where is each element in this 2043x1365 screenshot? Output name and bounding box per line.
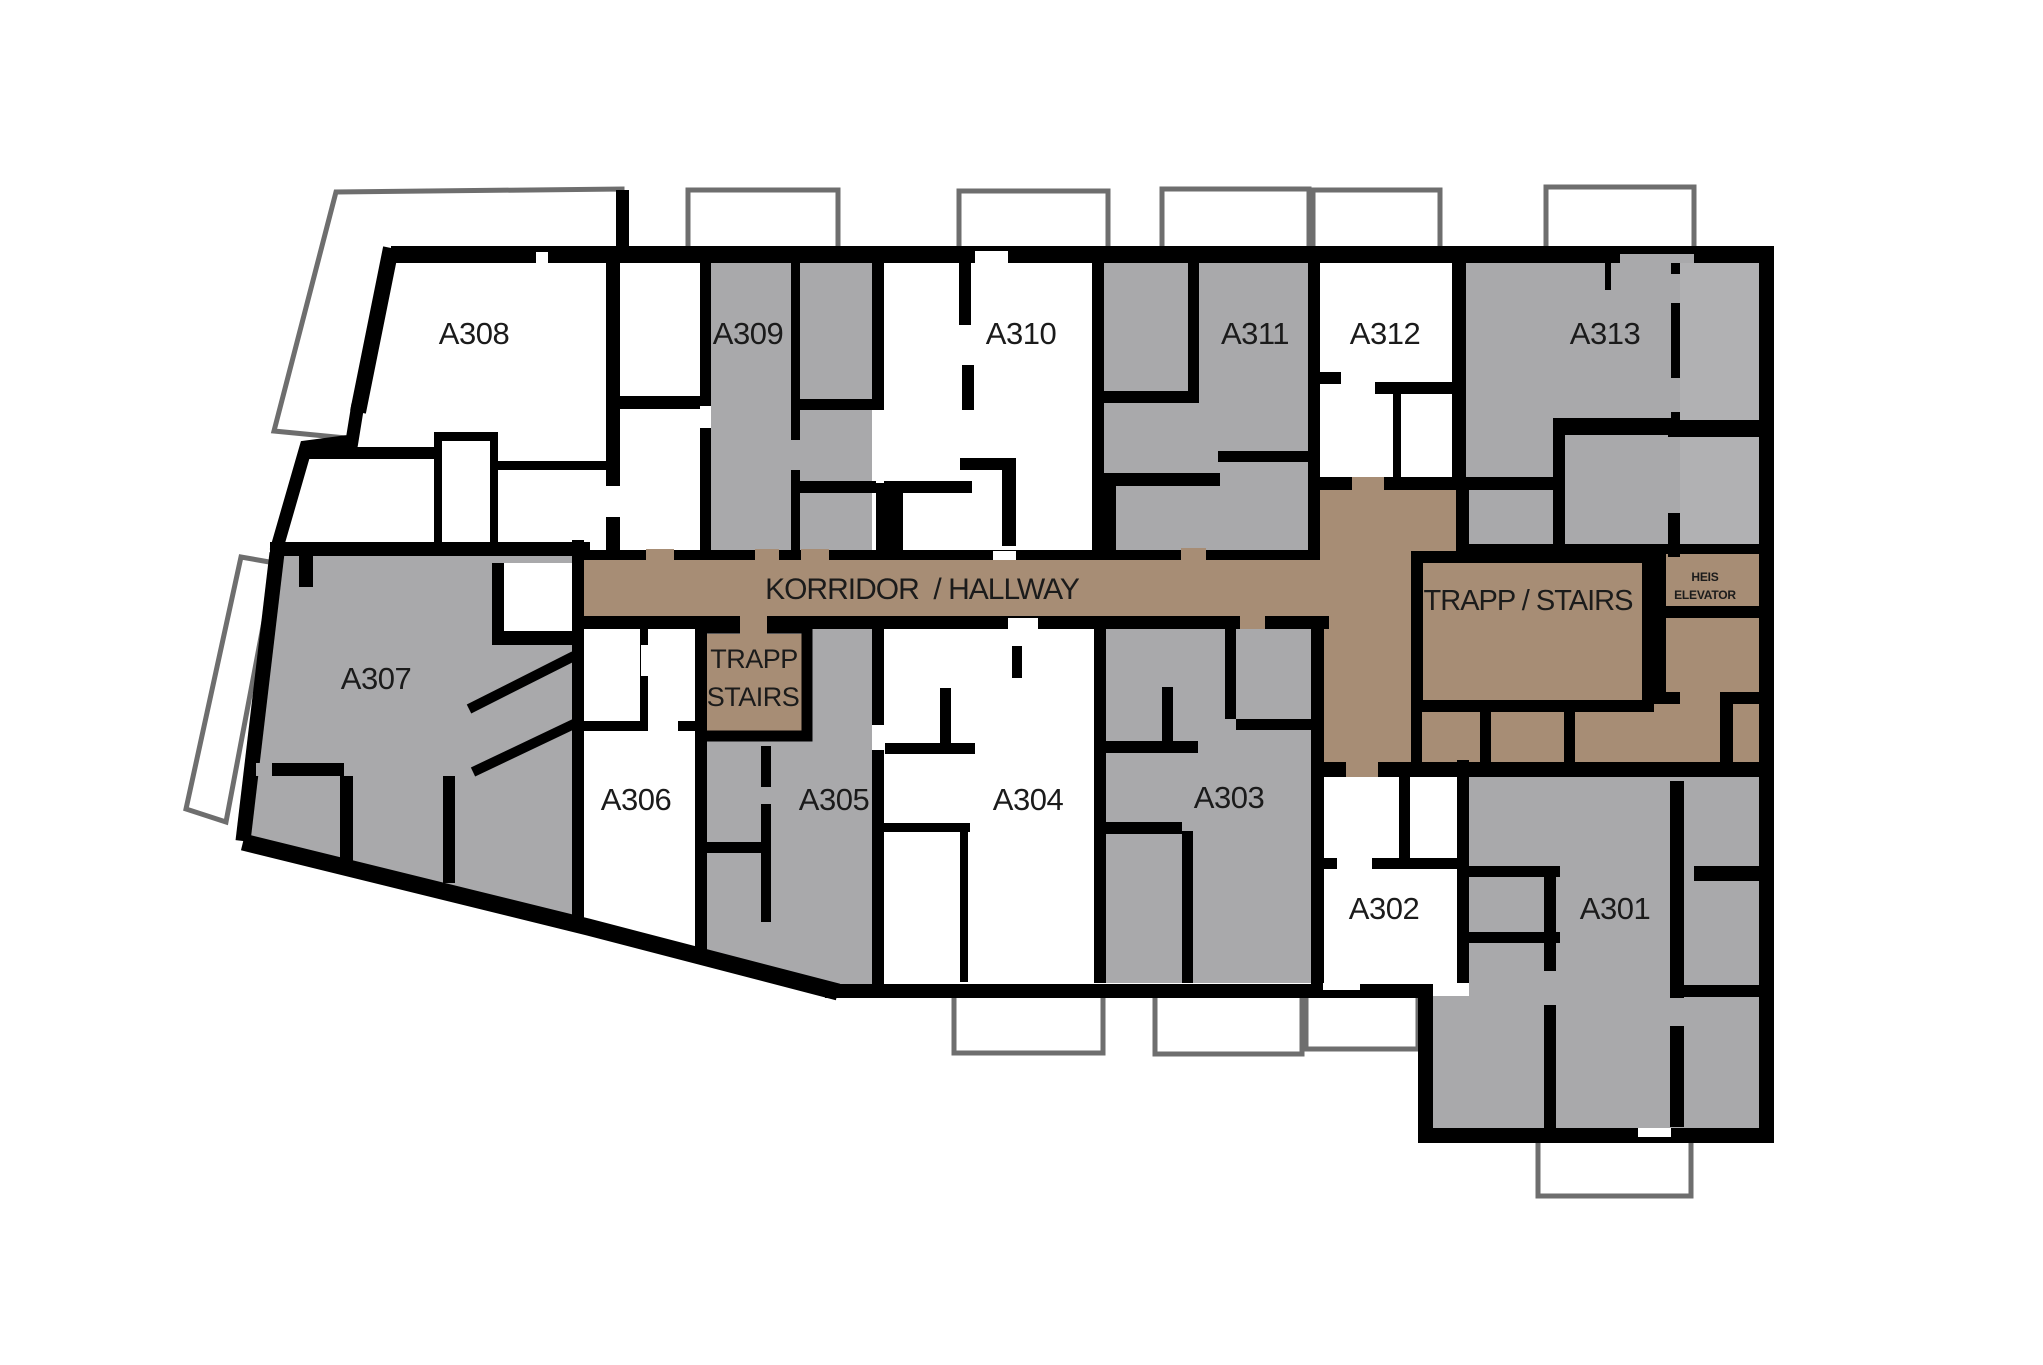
svg-text:STAIRS: STAIRS bbox=[707, 682, 800, 712]
svg-text:A310: A310 bbox=[986, 316, 1057, 351]
svg-text:HEIS: HEIS bbox=[1691, 570, 1718, 584]
svg-text:A306: A306 bbox=[601, 782, 671, 817]
svg-text:A311: A311 bbox=[1221, 316, 1289, 351]
svg-text:A309: A309 bbox=[713, 316, 783, 351]
svg-text:ELEVATOR: ELEVATOR bbox=[1674, 588, 1736, 602]
svg-text:A312: A312 bbox=[1350, 316, 1420, 351]
svg-text:A307: A307 bbox=[341, 661, 411, 696]
svg-text:A302: A302 bbox=[1349, 891, 1419, 926]
svg-text:TRAPP / STAIRS: TRAPP / STAIRS bbox=[1424, 585, 1634, 617]
svg-text:A308: A308 bbox=[439, 316, 509, 351]
svg-text:A303: A303 bbox=[1194, 780, 1264, 815]
svg-text:A305: A305 bbox=[799, 782, 869, 817]
svg-text:TRAPP: TRAPP bbox=[710, 644, 798, 674]
svg-text:A313: A313 bbox=[1570, 316, 1640, 351]
svg-text:A304: A304 bbox=[993, 782, 1064, 817]
svg-text:A301: A301 bbox=[1580, 891, 1650, 926]
svg-text:KORRIDOR / HALLWAY: KORRIDOR / HALLWAY bbox=[765, 573, 1080, 606]
